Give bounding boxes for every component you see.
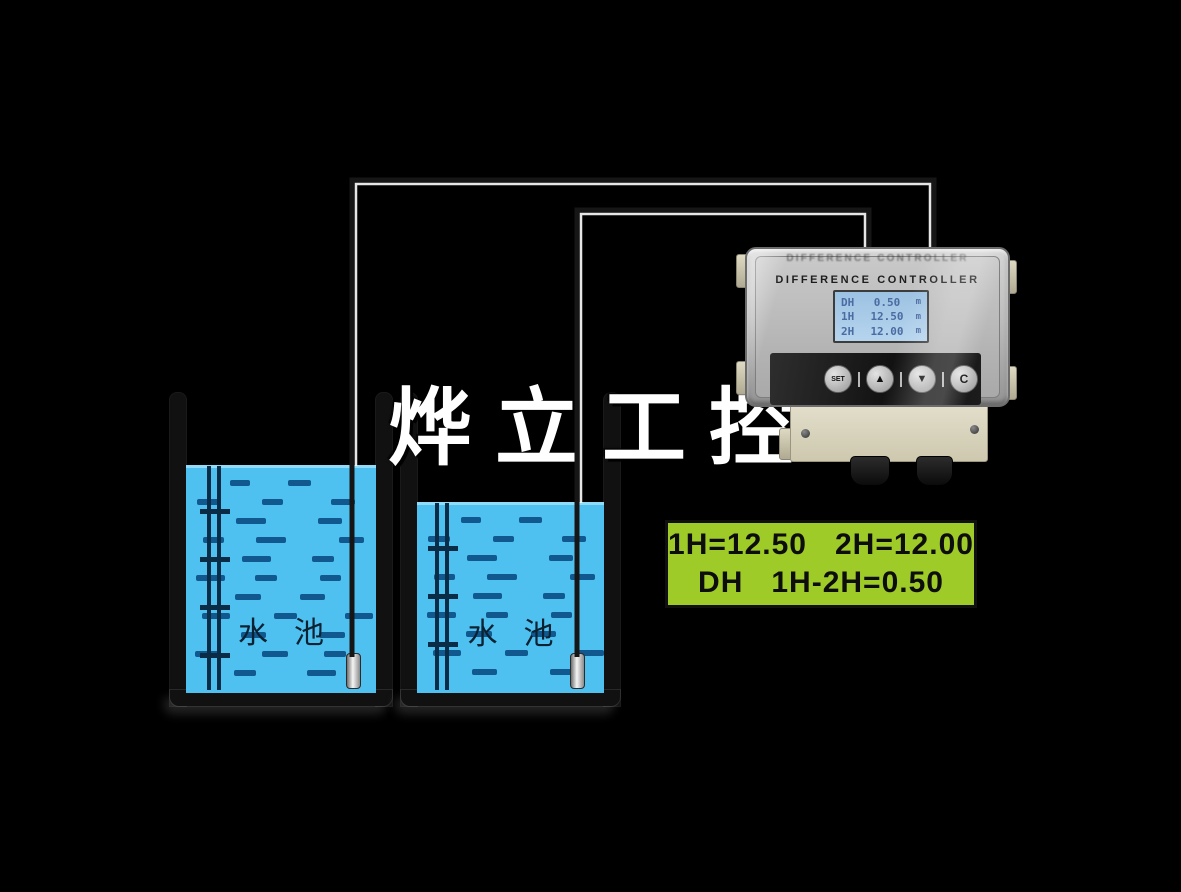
controller-face: DIFFERENCE CONTROLLER DIFFERENCE CONTROL… [755,256,1000,398]
lcd-2h-value: 12.00 [863,325,911,338]
tank2-label: 水池 [442,609,580,653]
readout-line-levels: 1H=12.50 2H=12.00 [668,528,974,562]
lcd-1h-label: 1H [841,310,863,323]
controller-lcd-screen: DH 0.50 m 1H 12.50 m 2H 12.00 m [833,290,929,343]
tank1-left-wall [170,393,186,706]
clear-button[interactable]: C [950,365,978,393]
lcd-dh-unit: m [911,297,921,307]
housing-screw-left [801,429,810,438]
keypad-divider [858,372,860,387]
up-arrow-button[interactable]: ▲ [866,365,894,393]
lcd-1h-unit: m [911,312,921,322]
tank2-level-gauge [428,503,458,690]
controller-lower-housing [790,400,988,462]
scene: 水池 水池 烨立工控 [0,0,1181,892]
tank1-sensor-probe-tip [346,653,361,689]
set-button[interactable]: SET [824,365,852,393]
lcd-dh-value: 0.50 [863,296,911,309]
lcd-dh-label: DH [841,296,863,309]
keypad-divider [900,372,902,387]
controller-front-cover: DIFFERENCE CONTROLLER DIFFERENCE CONTROL… [745,247,1010,407]
tank2-sensor-probe-tip [570,653,585,689]
cable-gland-left [850,456,890,486]
lcd-2h-unit: m [911,326,921,336]
down-arrow-button[interactable]: ▼ [908,365,936,393]
controller-keypad: SET ▲ ▼ C [770,353,981,405]
tank1-level-gauge [200,466,230,690]
lcd-row-dh: DH 0.50 m [841,296,921,309]
lcd-1h-value: 12.50 [863,310,911,323]
lcd-row-2h: 2H 12.00 m [841,325,921,338]
controller-title-reflection: DIFFERENCE CONTROLLER [756,253,999,264]
level-readout-panel: 1H=12.50 2H=12.00 DH 1H-2H=0.50 [665,520,977,608]
housing-screw-right [970,425,979,434]
readout-line-difference: DH 1H-2H=0.50 [698,566,944,600]
controller-title: DIFFERENCE CONTROLLER [756,274,999,286]
cable-gland-right [916,456,953,486]
keypad-divider [942,372,944,387]
lcd-row-1h: 1H 12.50 m [841,310,921,323]
lcd-2h-label: 2H [841,325,863,338]
tank1-label: 水池 [212,608,350,652]
